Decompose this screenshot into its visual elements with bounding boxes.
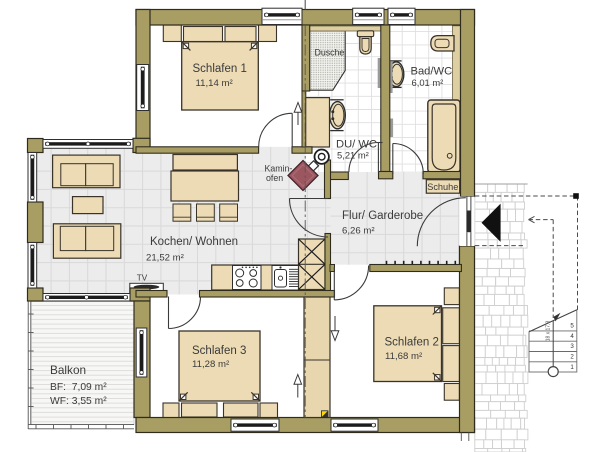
svg-text:18 x 17,3: 18 x 17,3 [546, 320, 552, 341]
svg-text:BF: 7,09 m²: BF: 7,09 m² [50, 382, 107, 393]
svg-text:Schlafen 3: Schlafen 3 [192, 345, 246, 357]
svg-text:21,52 m²: 21,52 m² [146, 253, 185, 264]
svg-text:Schuhe: Schuhe [427, 182, 458, 192]
svg-text:Schlafen 1: Schlafen 1 [193, 63, 247, 75]
svg-text:11,28 m²: 11,28 m² [192, 359, 230, 370]
svg-text:4: 4 [570, 333, 574, 340]
svg-text:6,01 m²: 6,01 m² [412, 77, 444, 88]
svg-text:TV: TV [137, 274, 148, 283]
svg-text:Balkon: Balkon [50, 363, 86, 377]
svg-text:WF: 3,55 m²: WF: 3,55 m² [50, 396, 107, 407]
svg-text:3: 3 [570, 343, 574, 350]
svg-text:Kamin-: Kamin- [265, 164, 293, 174]
svg-text:Flur/ Garderobe: Flur/ Garderobe [342, 210, 423, 222]
svg-text:5,21 m²: 5,21 m² [337, 150, 369, 161]
svg-text:11,14 m²: 11,14 m² [196, 78, 234, 89]
svg-text:2: 2 [570, 354, 574, 361]
svg-text:Kochen/ Wohnen: Kochen/ Wohnen [150, 236, 238, 248]
svg-text:Schlafen 2: Schlafen 2 [385, 337, 439, 349]
svg-text:11,68 m²: 11,68 m² [385, 351, 423, 362]
svg-text:6,26 m²: 6,26 m² [342, 226, 375, 237]
svg-text:Bad/WC: Bad/WC [411, 66, 453, 78]
svg-text:ofen: ofen [266, 173, 283, 183]
svg-text:Dusche: Dusche [315, 48, 345, 58]
svg-text:1: 1 [570, 364, 574, 371]
svg-text:5: 5 [570, 323, 574, 330]
